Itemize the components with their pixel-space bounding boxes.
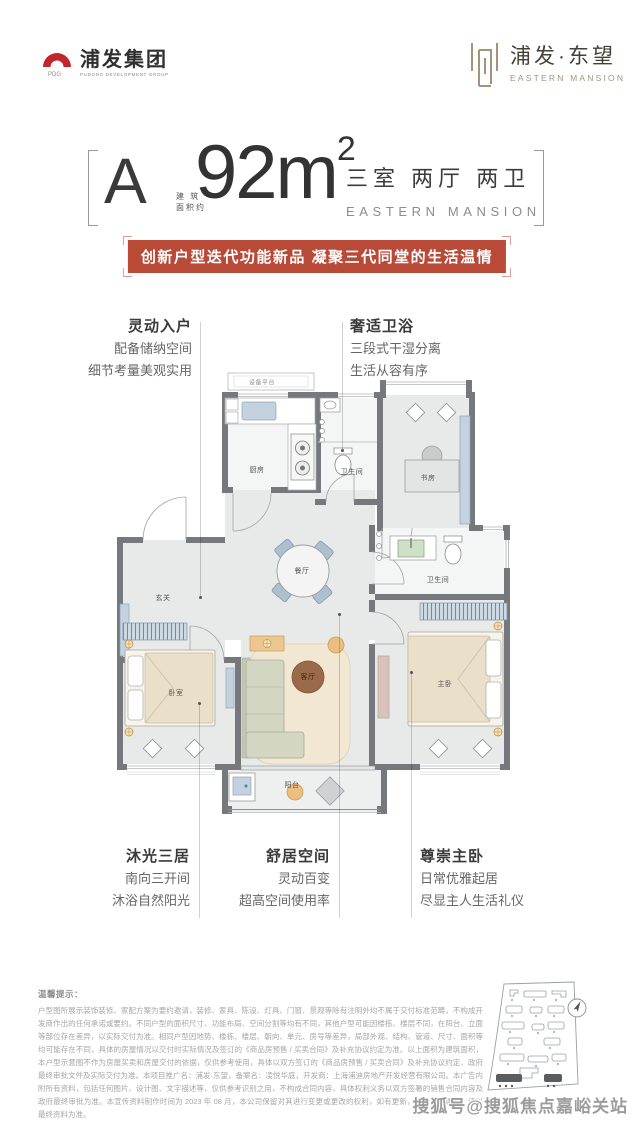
group-logo-title: 浦发集团 (80, 49, 169, 71)
brand-logo-title: 浦发·东望 (510, 45, 625, 69)
disclaimer-title: 温馨提示： (38, 988, 483, 1000)
callout-sunny-line2: 沐浴自然阳光 (40, 890, 190, 912)
title-bracket-left (88, 150, 98, 226)
layout-en: EASTERN MANSION (346, 204, 541, 219)
room-label-living: 客厅 (301, 672, 316, 682)
banner-corner-br (502, 268, 511, 277)
callout-bath-line1: 三段式干湿分离 (350, 338, 510, 360)
room-label-study: 书房 (421, 473, 436, 483)
living-furniture (242, 636, 350, 764)
room-label-bedroom: 卧室 (169, 688, 184, 698)
callout-space: 舒居空间 灵动百变 超高空间使用率 (180, 846, 330, 911)
callout-sunny-line1: 南向三开间 (40, 868, 190, 890)
callout-bath-title: 奢适卫浴 (350, 316, 510, 338)
callout-line-space (339, 615, 340, 918)
pudong-group-icon: PDG (40, 46, 74, 80)
slogan-banner-wrap: 创新户型迭代功能新品 凝聚三代同堂的生活温情 (128, 240, 506, 273)
eastern-mansion-monogram-icon (467, 40, 501, 88)
callout-line-bath (342, 322, 343, 450)
group-logo: PDG 浦发集团 PUDONG DEVELOPMENT GROUP (40, 46, 169, 80)
area-number: 92m (195, 130, 337, 215)
callout-master: 尊崇主卧 日常优雅起居 尽显主人生活礼仪 (420, 846, 580, 911)
slogan-banner: 创新户型迭代功能新品 凝聚三代同堂的生活温情 (128, 240, 506, 273)
room-label-dining: 餐厅 (295, 566, 310, 576)
callout-entry-line1: 配备储纳空间 (40, 338, 192, 360)
poster-page: PDG 浦发集团 PUDONG DEVELOPMENT GROUP 浦发·东望 … (0, 0, 635, 1125)
group-logo-subtitle: PUDONG DEVELOPMENT GROUP (80, 72, 169, 77)
callout-space-line2: 超高空间使用率 (180, 890, 330, 912)
unit-letter: A (104, 146, 147, 216)
watermark: 搜狐号@搜狐焦点嘉峪关站 (412, 1092, 628, 1117)
room-label-balcony: 阳台 (285, 780, 300, 790)
room-label-bathroom1: 卫生间 (341, 467, 364, 477)
room-label-bathroom2: 卫生间 (427, 575, 450, 585)
callout-dot-entry (199, 596, 202, 599)
callout-dot-master (410, 671, 413, 674)
floor-plan: 设备平台 厨房 卫生间 书房 玄关 餐厅 卫生间 卧室 客厅 主卧 阳台 (98, 372, 538, 832)
callout-master-title: 尊崇主卧 (420, 846, 580, 868)
callout-line-master (411, 673, 412, 918)
callout-master-line1: 日常优雅起居 (420, 868, 580, 890)
room-label-foyer: 玄关 (156, 593, 171, 603)
layout-cn: 三室 两厅 两卫 (346, 161, 541, 193)
callout-space-title: 舒居空间 (180, 846, 330, 868)
brand-logo-subtitle: EASTERN MANSION (510, 73, 625, 83)
brand-logo: 浦发·东望 EASTERN MANSION (467, 40, 625, 88)
title-bracket-right (534, 150, 544, 226)
room-label-equipment-platform: 设备平台 (249, 378, 275, 387)
callout-master-line2: 尽显主人生活礼仪 (420, 890, 580, 912)
room-label-master: 主卧 (438, 679, 453, 689)
banner-corner-tr (502, 236, 511, 245)
callout-dot-bath (341, 449, 344, 452)
svg-text:PDG: PDG (48, 72, 61, 78)
callout-dot-sunny (198, 702, 201, 705)
callout-entry-title: 灵动入户 (40, 316, 192, 338)
callout-sunny: 沐光三居 南向三开间 沐浴自然阳光 (40, 846, 190, 911)
callout-space-line1: 灵动百变 (180, 868, 330, 890)
callout-sunny-title: 沐光三居 (40, 846, 190, 868)
callout-dot-space (338, 613, 341, 616)
room-label-kitchen: 厨房 (250, 465, 265, 475)
layout-group: 三室 两厅 两卫 EASTERN MANSION (346, 161, 541, 219)
banner-corner-bl (123, 268, 132, 277)
callout-line-entry (200, 322, 201, 597)
banner-corner-tl (123, 236, 132, 245)
compass-icon (566, 997, 588, 1019)
area-value: 92m2 (195, 132, 356, 211)
